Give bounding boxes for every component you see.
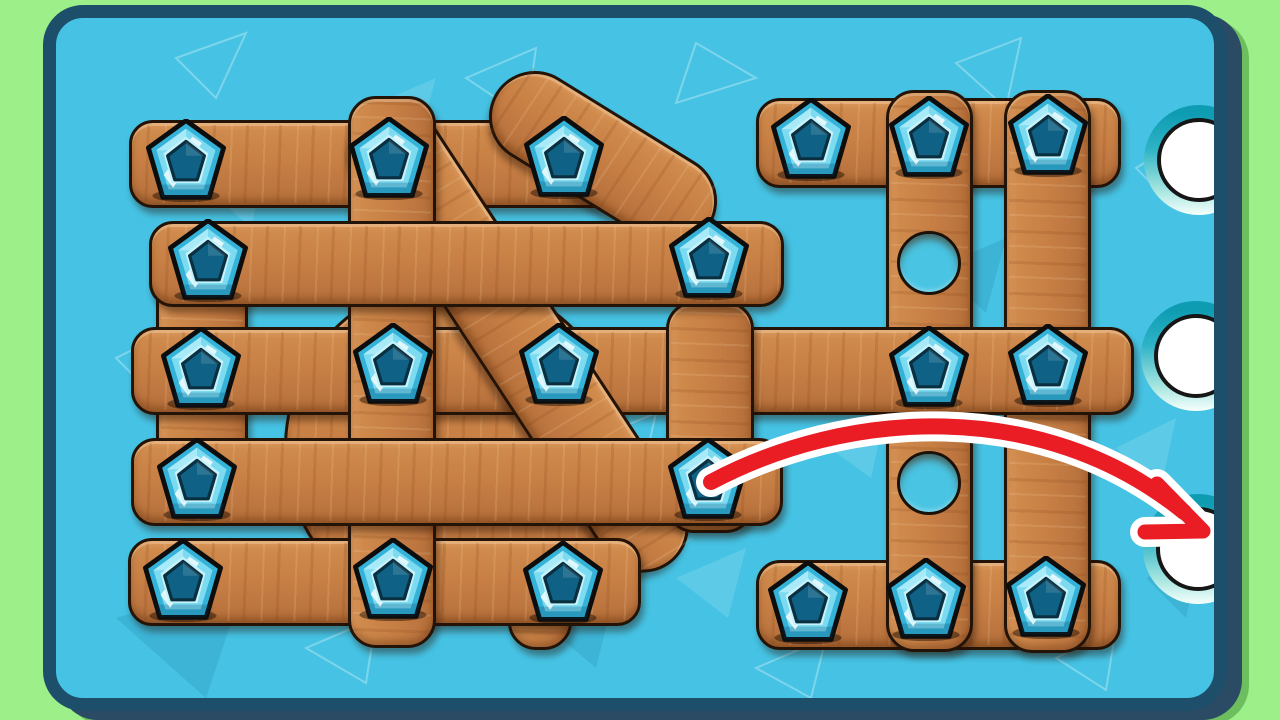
screw[interactable]	[168, 219, 248, 302]
screw[interactable]	[349, 117, 429, 200]
screw[interactable]	[889, 326, 969, 409]
screw[interactable]	[143, 539, 223, 622]
screw[interactable]	[157, 438, 237, 521]
screw[interactable]	[768, 561, 848, 644]
puzzle-board	[43, 5, 1227, 711]
screws-layer	[56, 18, 1214, 698]
screw[interactable]	[771, 98, 851, 181]
screw[interactable]	[524, 116, 604, 199]
screw[interactable]	[1006, 556, 1086, 639]
game-stage	[0, 0, 1280, 720]
screw[interactable]	[353, 538, 433, 621]
screw[interactable]	[523, 541, 603, 624]
screw[interactable]	[353, 323, 433, 406]
screw[interactable]	[1008, 94, 1088, 177]
screw[interactable]	[1008, 324, 1088, 407]
screw[interactable]	[669, 217, 749, 300]
screw[interactable]	[886, 558, 966, 641]
screw[interactable]	[161, 327, 241, 410]
screw[interactable]	[889, 96, 969, 179]
screw[interactable]	[668, 438, 748, 521]
screw[interactable]	[146, 119, 226, 202]
screw[interactable]	[519, 323, 599, 406]
board-surface	[56, 18, 1214, 698]
